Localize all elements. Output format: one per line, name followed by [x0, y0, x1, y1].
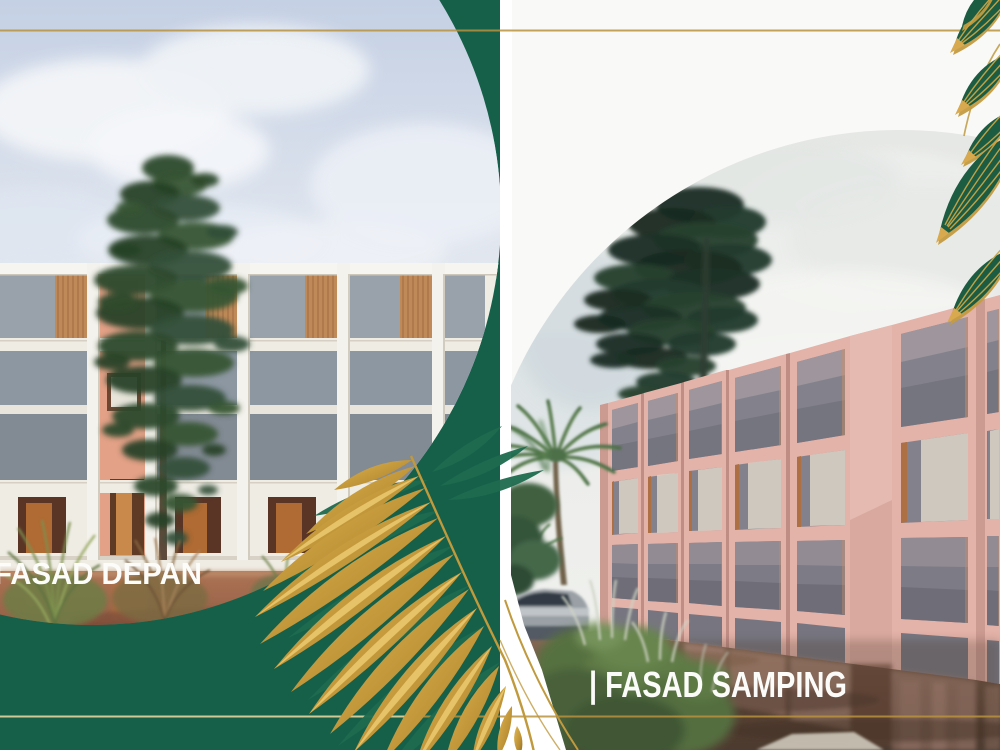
svg-text:FASAD DEPAN: FASAD DEPAN [0, 556, 202, 591]
svg-text:| FASAD SAMPING: | FASAD SAMPING [589, 664, 847, 706]
